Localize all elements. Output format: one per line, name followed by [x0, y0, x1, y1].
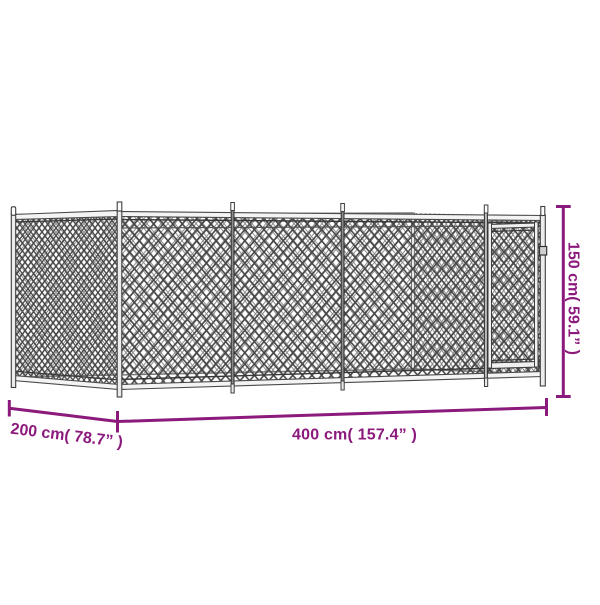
- svg-text:400 cm( 157.4” ): 400 cm( 157.4” ): [292, 427, 417, 444]
- svg-text:150 cm( 59.1” ): 150 cm( 59.1” ): [565, 242, 582, 355]
